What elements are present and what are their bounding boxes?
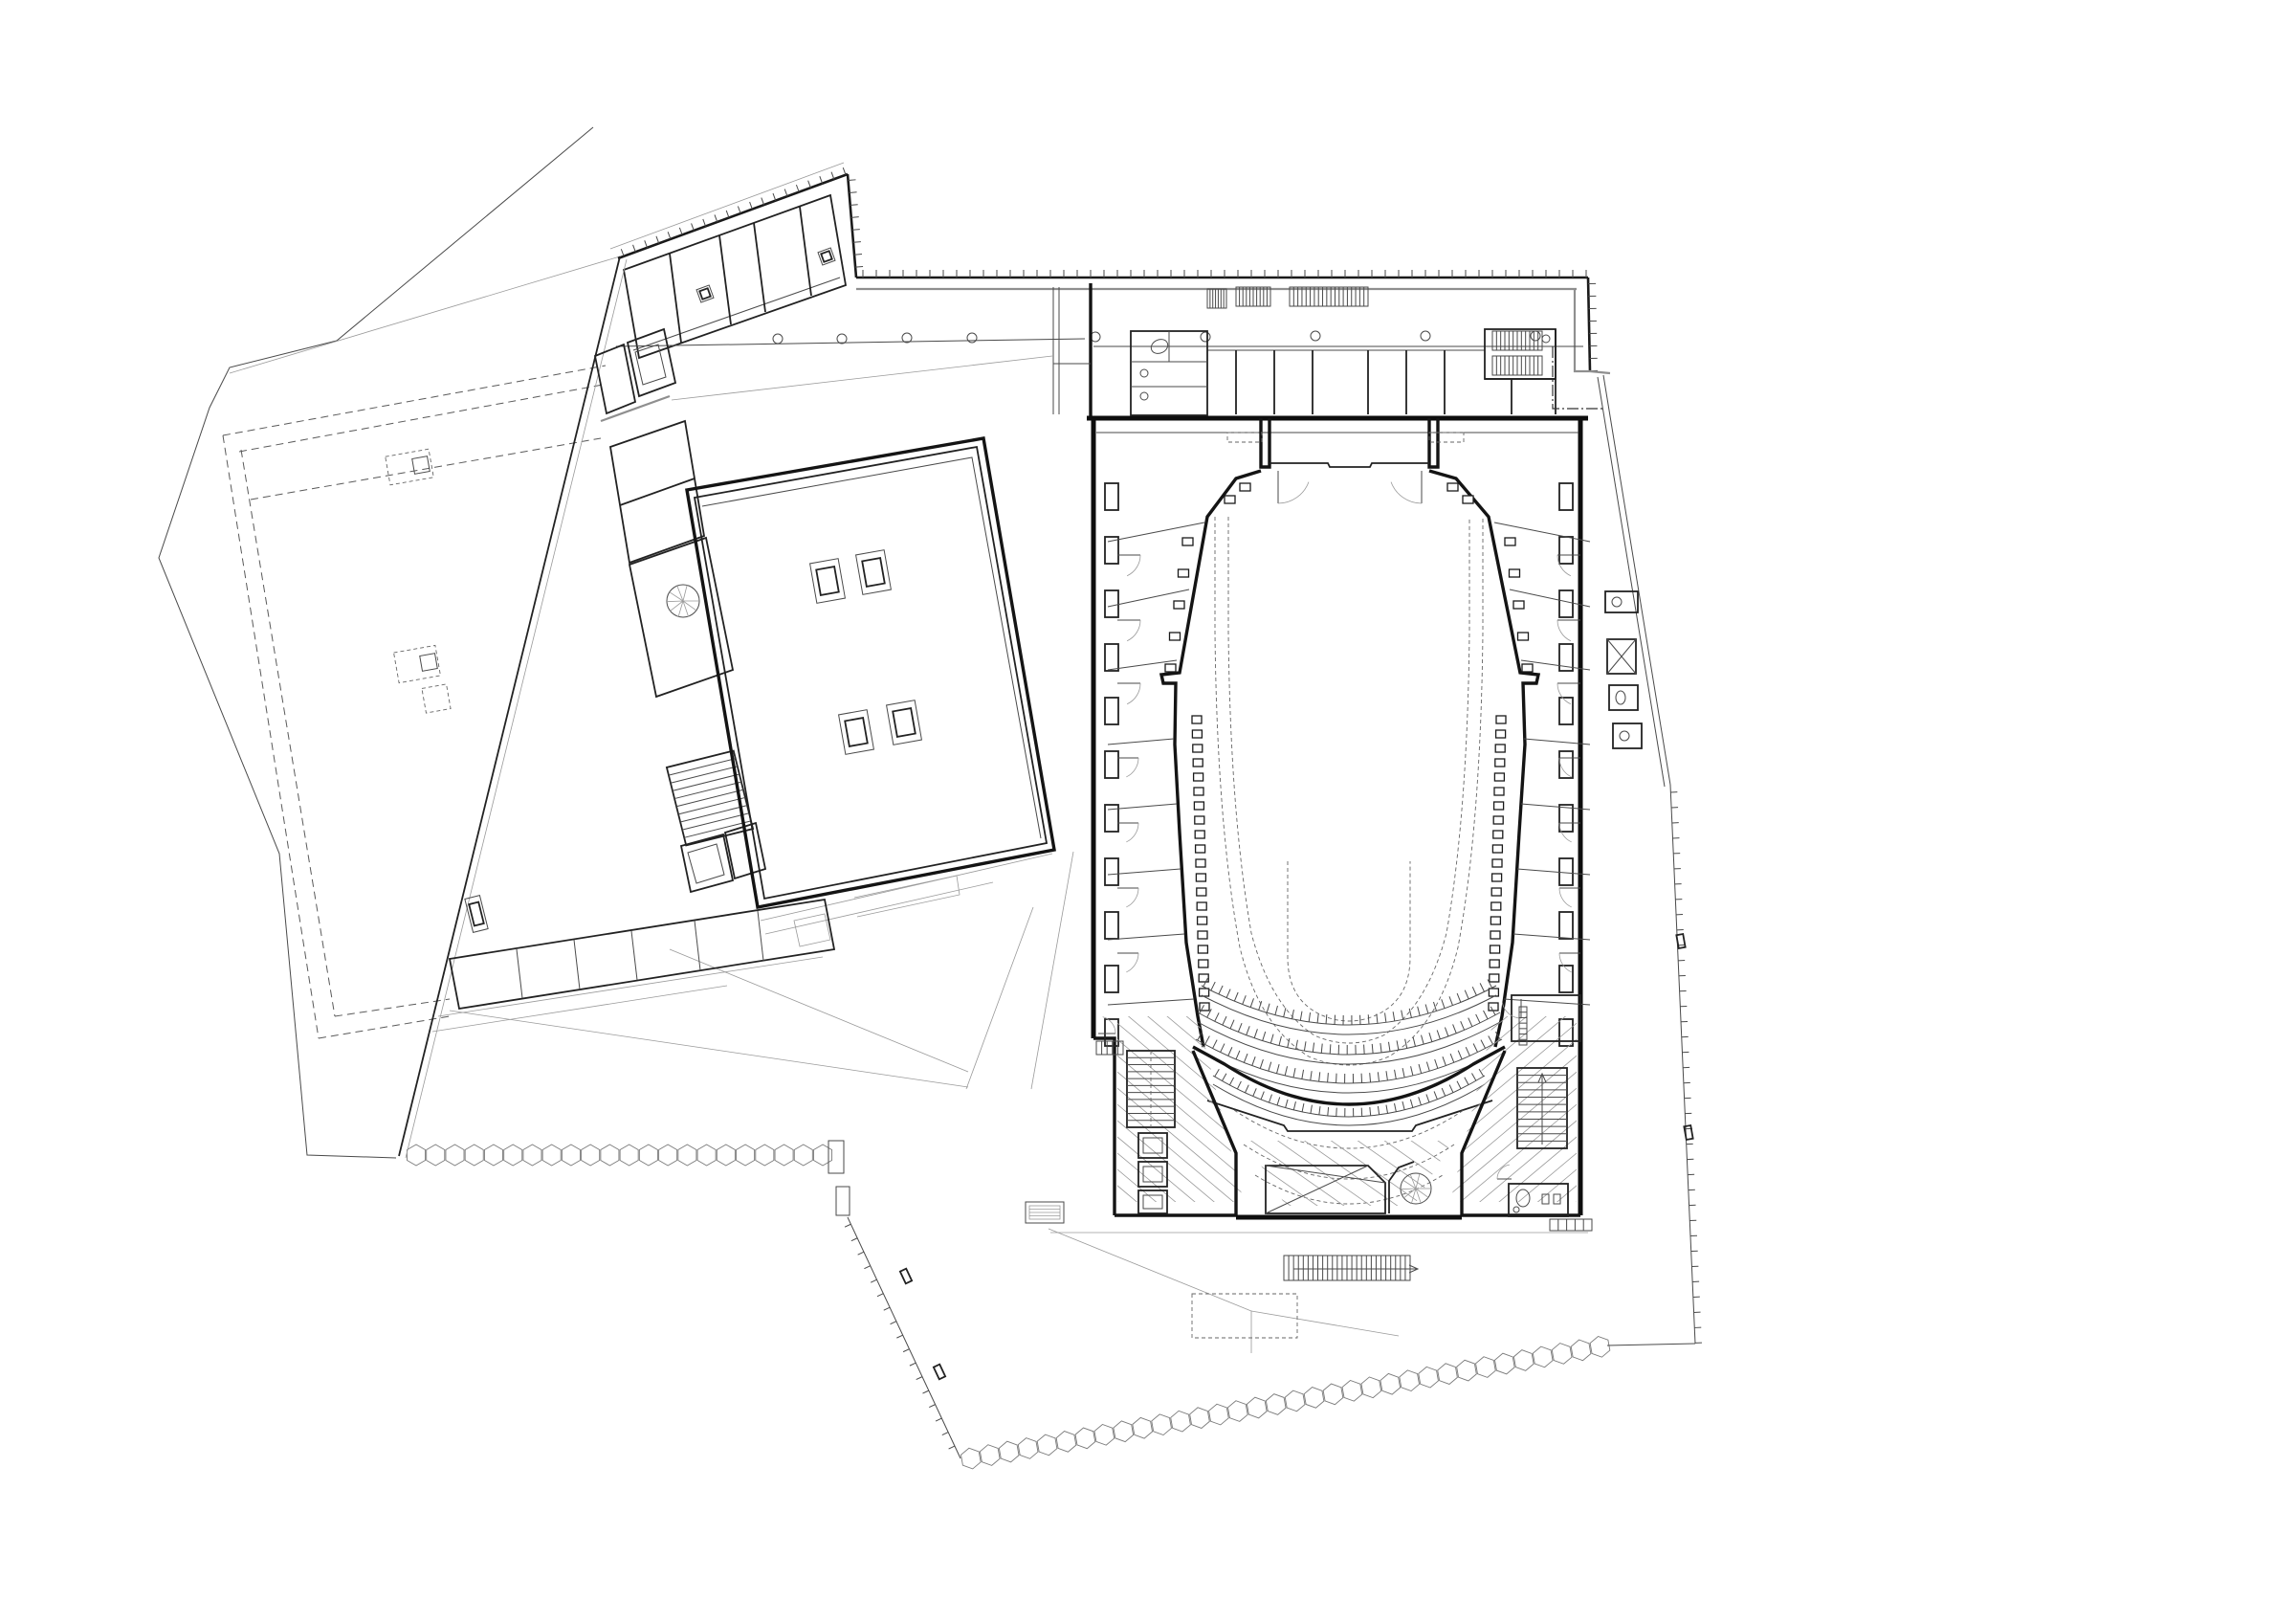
boundary-wall-stub-1 (828, 1141, 844, 1173)
dashdot-service-line (1553, 346, 1604, 409)
6 (1207, 289, 1226, 308)
site-grade-line (230, 256, 620, 373)
5 (1165, 538, 1193, 672)
parterre-row-dashed-2 (1244, 1145, 1454, 1179)
plan-layers (159, 127, 1702, 1469)
5 (1505, 538, 1533, 672)
east-parapet-step (1575, 289, 1610, 373)
spiral-stair-west (667, 585, 699, 617)
4 (1550, 1219, 1592, 1231)
roof-skylight-solid-2 (420, 654, 438, 672)
wing-north-facade (618, 167, 848, 258)
12 (1492, 356, 1542, 375)
rear-dashed-box-east (1429, 433, 1464, 442)
rear-door-west (1278, 471, 1309, 503)
hall-terrace-step (794, 914, 830, 946)
south-band-partition-2 (574, 940, 580, 989)
floor-plan-svg (0, 0, 2296, 1623)
seat-row-arc-1 (1202, 978, 1496, 1034)
balcony-front-heavy (1193, 1047, 1505, 1104)
wing-lower-room-1-inner (688, 844, 724, 883)
south-band-partition-5 (758, 911, 763, 961)
wing-corridor-edge (616, 339, 1085, 346)
floor-plan-page (0, 0, 2296, 1623)
hall-skylight-3 (839, 710, 874, 755)
roof-skylight-solid-1 (412, 456, 430, 475)
box-partition-west-l4 (1108, 934, 1184, 940)
box-door-east-l3 (1559, 888, 1580, 907)
parterre-row-dashed-1 (1234, 1110, 1464, 1148)
facade-fixture-lift (1607, 639, 1636, 674)
hall-skylight-4 (887, 700, 922, 745)
colonnade-column-3 (902, 333, 912, 343)
stage-lift-xbox (1266, 1166, 1385, 1213)
roof-skylight-dashed-3 (422, 684, 451, 713)
elevator-west-2-inner (1143, 1167, 1162, 1182)
gate-marker-sw-1 (900, 1269, 912, 1284)
wc-basin-1 (1140, 369, 1148, 377)
balcony-wall-east (1429, 471, 1538, 1047)
wing-east-return (848, 174, 863, 278)
colonnade-column-2 (837, 334, 847, 344)
parterre-dashed-stadium (1288, 861, 1410, 1021)
box-partition-west-l1 (1108, 739, 1174, 745)
wing-north-parapet (610, 163, 844, 249)
slope-hatch-west (1005, 933, 1357, 1284)
hall-roof-edge-line (702, 457, 1041, 838)
wing-room-partition-2 (719, 235, 731, 324)
south-band-rooms (450, 900, 834, 1009)
upper-level-dashed-outer (1215, 517, 1483, 1065)
boundary-corner-link (1607, 1344, 1695, 1345)
facade-fixture-wc2-bowl (1620, 731, 1629, 741)
wing-west-facade-offset (406, 259, 627, 1158)
box-door-east-u2 (1557, 620, 1580, 641)
box-door-east-u3 (1557, 683, 1580, 704)
plaza-line-2 (1031, 852, 1073, 1089)
boundary-wall-ticked-southeast (1670, 785, 1702, 1344)
roof-skylight-dashed-1 (386, 449, 434, 485)
stage-spiral-enclosure (1389, 1162, 1414, 1213)
box-door-east-l4 (1559, 953, 1580, 972)
wing-tall-rooms-partition (620, 478, 695, 505)
slope-hatch-east (1337, 933, 1689, 1284)
stair-core-north (1485, 329, 1556, 379)
gate-marker-se-1 (1676, 934, 1685, 948)
wing-column-symbol-1 (696, 285, 714, 302)
hedge-row-south (407, 1145, 831, 1166)
colonnade-column-8 (1421, 331, 1430, 341)
11 (1105, 483, 1118, 1046)
21 (1192, 716, 1209, 1011)
wing-room-partition-1 (670, 254, 681, 343)
rear-dashed-box-west (1227, 433, 1262, 442)
roof-ring-dashed-top-3 (251, 438, 601, 500)
wing-column-symbol-2 (818, 248, 835, 265)
colonnade-column-4 (967, 333, 977, 343)
rear-stub-east (1429, 418, 1438, 467)
box-door-west-u3 (1117, 683, 1140, 704)
rear-door-east (1391, 471, 1422, 503)
roof-ring-dashed-top-2 (239, 385, 603, 452)
south-band-terrace-2 (432, 986, 727, 1032)
boundary-wall-ticked-southwest (845, 1217, 960, 1458)
rear-stub-west (1261, 418, 1269, 467)
hall-skylight-2 (856, 550, 892, 595)
south-band-skylight (465, 896, 488, 933)
exterior-stair-arrow (1293, 1265, 1418, 1273)
21 (1489, 716, 1506, 1011)
south-band-partition-1 (517, 949, 522, 998)
balcony-wall-west (1161, 471, 1261, 1047)
hedge-row-southeast (960, 1337, 1609, 1469)
roof-ring-dashed-left-2 (241, 450, 335, 1016)
hall-roof-outer (687, 438, 1054, 907)
wc-se-basin (1513, 1207, 1519, 1212)
box-door-west-l3 (1117, 888, 1138, 907)
26 (1284, 1256, 1410, 1280)
colonnade-column-7 (1311, 331, 1320, 341)
plaza-line-3 (450, 1011, 968, 1087)
elevator-west-3-inner (1143, 1195, 1162, 1209)
wing-small-room-2 (628, 329, 675, 396)
box-door-west-l4 (1117, 953, 1138, 972)
wc-se-urinal-2 (1554, 1194, 1560, 1204)
theatre-east-return-ticked (1588, 278, 1598, 371)
wc-basin-2 (1140, 392, 1148, 400)
facade-fixture-wc2 (1613, 723, 1642, 748)
colonnade-column-1 (773, 334, 783, 344)
hall-skylight-1 (810, 559, 846, 604)
theatre-west-wall-step (1093, 1038, 1115, 1215)
box-door-east-l1 (1559, 758, 1580, 777)
stair-core-north-fixture (1542, 335, 1550, 343)
roof-ring-dashed-top-1 (223, 366, 606, 435)
rear-gallery-rail (1269, 463, 1429, 467)
south-band-terrace-1 (438, 957, 823, 1016)
box-door-east-u1 (1557, 555, 1580, 576)
box-door-east-l2 (1559, 823, 1580, 842)
box-door-west-l2 (1117, 823, 1138, 842)
wing-room-band-inner (633, 278, 840, 350)
east-glass-facade-inner (1598, 377, 1665, 787)
3 (1029, 1206, 1060, 1219)
ground-spur-line (1049, 1229, 1251, 1353)
box-partition-east-l5 (1504, 999, 1590, 1005)
wing-west-facade (399, 256, 620, 1156)
box-door-west-u1 (1117, 555, 1140, 576)
gate-marker-sw-2 (934, 1365, 945, 1380)
theatre-north-wall-ticked (856, 270, 1588, 278)
wing-room-band (624, 195, 846, 358)
6 (1519, 1007, 1527, 1045)
wing-lower-room-1 (681, 834, 733, 892)
wing-room-partition-4 (800, 207, 811, 296)
box-door-west-u2 (1117, 620, 1140, 641)
seat-row-arc-3 (1196, 1032, 1502, 1093)
boundary-wall-stub-2 (836, 1187, 850, 1215)
colonnade-column-9 (1531, 331, 1540, 341)
wing-small-room-1 (595, 345, 635, 413)
wing-corridor-edge-2 (672, 356, 1052, 400)
box-door-west-l1 (1117, 758, 1138, 777)
south-band-partition-3 (631, 931, 637, 980)
roof-skylight-dashed-2 (394, 645, 441, 682)
box-partition-west-l5 (1108, 999, 1194, 1005)
roof-ring-dashed-bottom-2 (335, 999, 450, 1016)
wing-room-partition-3 (754, 223, 765, 312)
spiral-stair-stage (1401, 1173, 1431, 1204)
site-boundary-west (159, 127, 593, 1158)
ground-spur-line-2 (1251, 1311, 1399, 1336)
roof-ring-dashed-left-1 (223, 435, 319, 1038)
plaza-line-1 (966, 907, 1033, 1089)
facade-fixture-wc1 (1609, 685, 1638, 710)
colonnade-column-6 (1201, 332, 1210, 342)
facade-fixture-wc1-bowl (1616, 691, 1625, 704)
hall-terrace-line-1 (761, 854, 1052, 921)
south-band-partition-4 (695, 921, 700, 970)
upper-level-dashed-inner (1228, 517, 1469, 1043)
facade-fixture-sink-bowl (1612, 597, 1622, 607)
